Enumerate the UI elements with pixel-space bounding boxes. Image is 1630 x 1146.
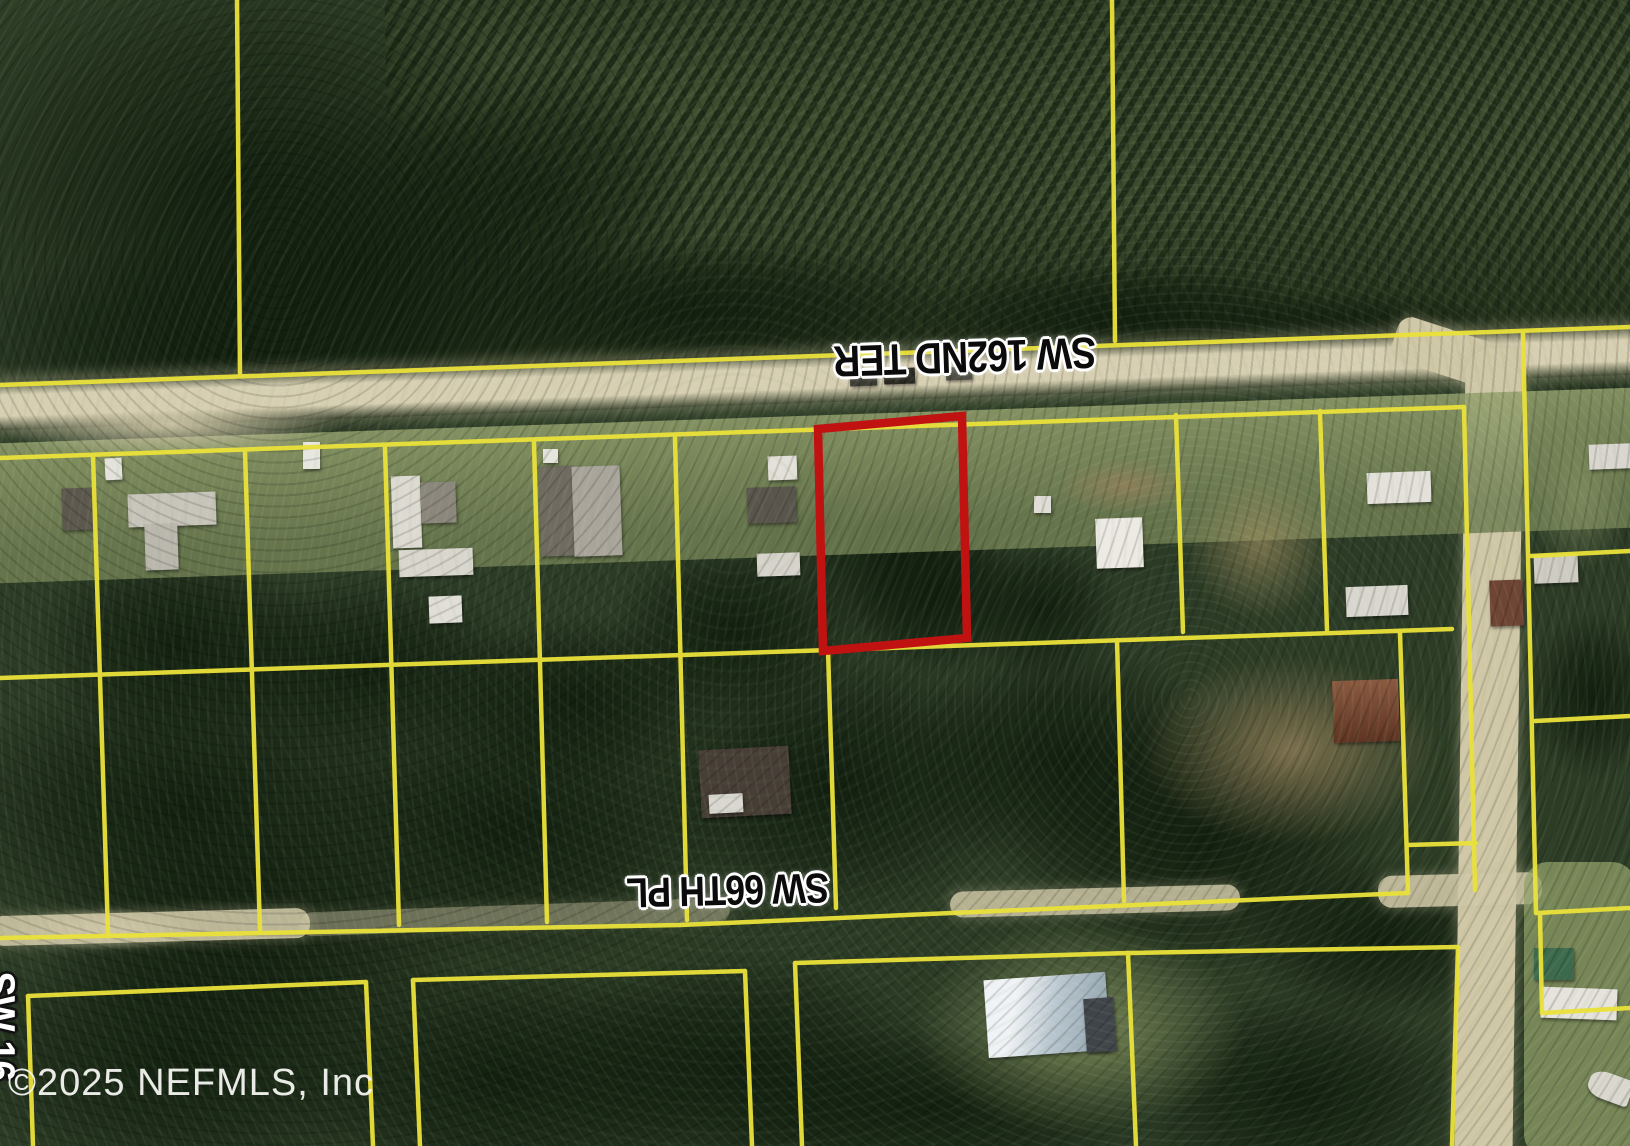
lot-line (1540, 915, 1542, 1013)
watermark-nefmls: ©2025 NEFMLS, Inc (8, 1062, 374, 1105)
lot-line (1117, 640, 1124, 901)
lot-line (1320, 411, 1327, 630)
lot-line (1452, 947, 1458, 1146)
lot-line (534, 443, 547, 922)
lot-line (93, 455, 108, 934)
lot-line (413, 980, 420, 1146)
lot-line (1535, 716, 1630, 721)
lot-line (413, 971, 745, 980)
lot-line (795, 963, 802, 1146)
lot-line (0, 327, 1630, 385)
lot-line (675, 438, 687, 920)
lot-line (745, 971, 752, 1146)
lot-line (1523, 333, 1536, 913)
lot-line (1537, 908, 1630, 913)
lot-line (1176, 415, 1183, 632)
street-label-sw-162nd-ter: SW 162ND TER (824, 329, 1106, 383)
aerial-parcel-map: SW 162ND TER SW 66TH PL SW 16 ©2025 NEFM… (0, 0, 1630, 1146)
parcel-boundary-lines (0, 0, 1630, 1146)
lot-line (0, 407, 1464, 458)
lot-line (0, 629, 1452, 678)
lot-line (1531, 551, 1630, 556)
lot-line (795, 953, 1128, 963)
lot-line (1464, 407, 1475, 890)
lot-line (1408, 843, 1476, 845)
lot-line (1400, 632, 1408, 893)
lot-line (385, 448, 399, 925)
lot-line (28, 982, 366, 996)
lot-line (1128, 953, 1136, 1146)
lot-line (1112, 0, 1115, 341)
subject-parcel-outline (818, 416, 967, 651)
lot-line (1542, 1008, 1630, 1013)
lot-line (237, 0, 240, 376)
lot-line (245, 452, 260, 930)
street-label-sw-66th-pl: SW 66TH PL (608, 866, 847, 914)
lot-line (1128, 947, 1458, 953)
